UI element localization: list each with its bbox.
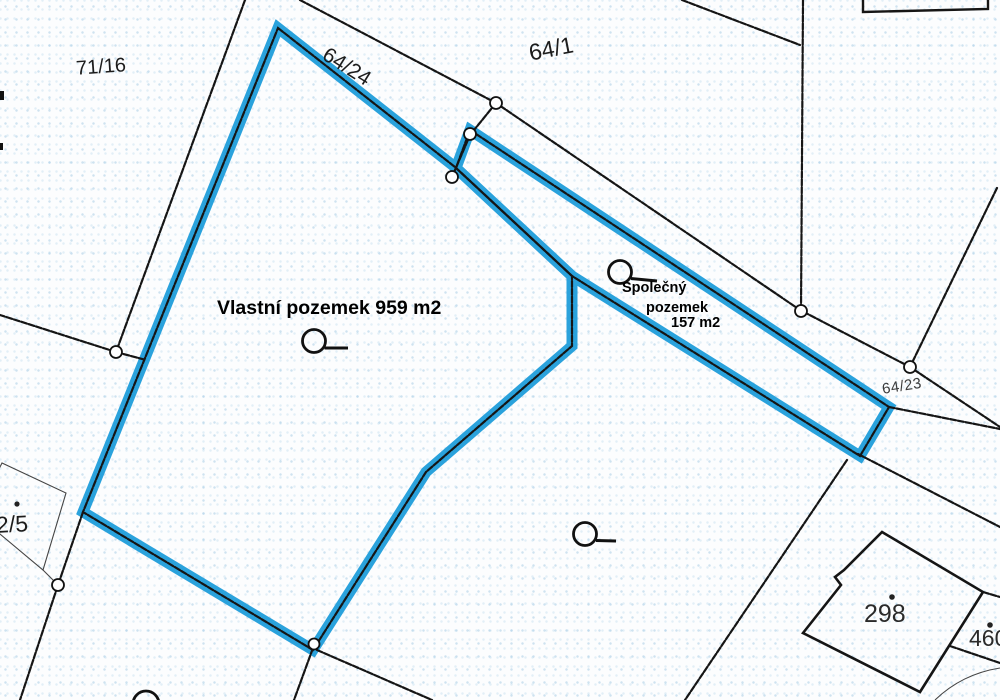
map-linework (0, 0, 1000, 700)
orchard-loop-symbol (574, 523, 617, 546)
shared-parcel-annotation-line3: 157 m2 (671, 316, 720, 331)
shared-parcel-annotation-line2: pozemek (646, 301, 708, 316)
thin-lines (0, 463, 1000, 700)
parcel-label-2-5: 2/5 (0, 512, 29, 537)
highlight-boundaries (83, 28, 889, 650)
building-centroid-dot (14, 501, 19, 506)
boundary-right-upper (910, 188, 997, 367)
survey-point-circle (446, 171, 458, 183)
boundary-64-1-east (801, 0, 803, 311)
land-use-symbols (133, 261, 657, 700)
scan-artifacts (0, 91, 4, 150)
boundary-bottom-right-spur (317, 650, 432, 700)
parcel-label-71-16: 71/16 (75, 55, 126, 78)
parcel-label-298: 298 (864, 602, 906, 627)
boundary-71-16-south (0, 315, 116, 352)
survey-point-circle (795, 305, 807, 317)
boundary-64-1-south (300, 0, 1000, 427)
boundary-southeast-diagonal (685, 460, 847, 700)
boundary-460-north (983, 592, 1000, 597)
survey-point-circle (110, 346, 122, 358)
cadastral-map-screenshot: 71/16 64/24 64/1 64/23 298 460 2/5 Vlast… (0, 0, 1000, 700)
boundary-64-23-north (889, 407, 1000, 429)
survey-point-circle (490, 97, 502, 109)
boundary-bottom-left-spur (294, 648, 313, 700)
survey-point-circle (309, 639, 320, 650)
shared-parcel-annotation-line1: Společný (622, 281, 686, 296)
buildings (803, 0, 988, 692)
own-parcel-annotation: Vlastní pozemek 959 m2 (217, 299, 441, 319)
building-top-right-outline (863, 0, 988, 12)
boundary-top-right-diagonal (682, 0, 800, 45)
orchard-loop-symbol (133, 691, 159, 700)
survey-point-circle (52, 579, 64, 591)
building-centroid-dot (889, 594, 895, 600)
boundary-64-23-south (858, 454, 1000, 527)
survey-point-circle (904, 361, 916, 373)
parcel-label-460: 460 (969, 627, 1000, 650)
orchard-loop-symbol (303, 330, 349, 353)
survey-point-circle (464, 128, 476, 140)
bottom-right-curve (935, 668, 1000, 700)
